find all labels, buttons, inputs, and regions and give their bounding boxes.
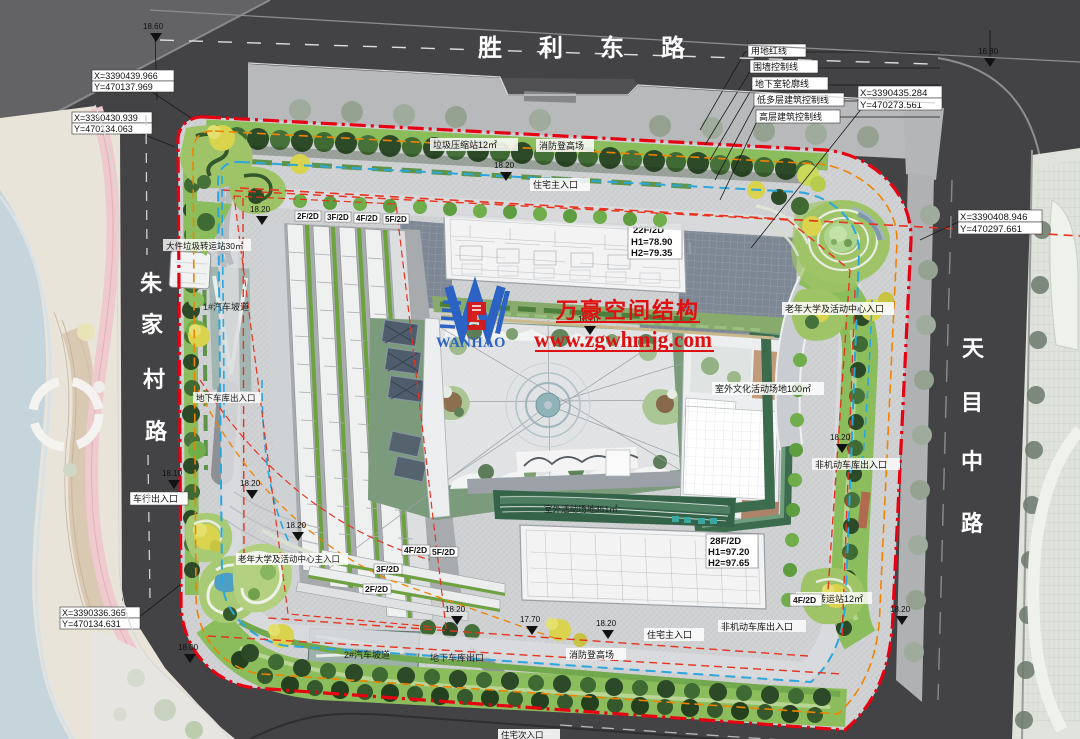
svg-text:非机动车库出入口: 非机动车库出入口 bbox=[721, 621, 793, 632]
svg-text:地下室轮廓线: 地下室轮廓线 bbox=[755, 78, 809, 89]
svg-text:Y=470297.661: Y=470297.661 bbox=[960, 224, 1022, 235]
svg-text:18.20: 18.20 bbox=[596, 619, 617, 628]
svg-text:天: 天 bbox=[962, 336, 985, 361]
svg-text:室外活动场地351㎡: 室外活动场地351㎡ bbox=[544, 504, 618, 514]
svg-text:住宅主入口: 住宅主入口 bbox=[533, 179, 578, 190]
svg-text:2F/2D: 2F/2D bbox=[365, 584, 388, 594]
svg-text:X=3390430.939: X=3390430.939 bbox=[74, 113, 138, 123]
svg-text:5F/2D: 5F/2D bbox=[385, 215, 407, 224]
svg-text:18.00: 18.00 bbox=[178, 643, 199, 652]
svg-text:高层建筑控制线: 高层建筑控制线 bbox=[759, 111, 822, 122]
svg-text:16.80: 16.80 bbox=[978, 47, 999, 56]
svg-text:2#汽车坡道: 2#汽车坡道 bbox=[344, 649, 390, 660]
svg-text:3F/2D: 3F/2D bbox=[376, 564, 399, 574]
svg-text:H2=79.35: H2=79.35 bbox=[631, 248, 673, 259]
svg-text:18.20: 18.20 bbox=[240, 479, 261, 488]
svg-text:万豪空间结构: 万豪空间结构 bbox=[555, 298, 700, 323]
svg-text:X=3390435.284: X=3390435.284 bbox=[860, 88, 927, 99]
svg-text:家: 家 bbox=[141, 312, 164, 337]
svg-text:H2=97.65: H2=97.65 bbox=[708, 558, 750, 569]
svg-text:18.20: 18.20 bbox=[445, 605, 466, 614]
svg-text:www.zgwhmjg.com: www.zgwhmjg.com bbox=[534, 327, 712, 352]
svg-text:18.20: 18.20 bbox=[250, 205, 271, 214]
svg-text:5F/2D: 5F/2D bbox=[432, 547, 455, 557]
svg-text:18.20: 18.20 bbox=[890, 605, 911, 614]
svg-text:X=3390408.946: X=3390408.946 bbox=[960, 212, 1027, 223]
svg-text:Y=470134.631: Y=470134.631 bbox=[62, 619, 121, 629]
svg-text:地下车库出口: 地下车库出口 bbox=[430, 652, 484, 663]
svg-text:WANHAO: WANHAO bbox=[436, 335, 506, 351]
svg-text:17.70: 17.70 bbox=[520, 615, 541, 624]
svg-text:胜利东路: 胜利东路 bbox=[478, 34, 722, 62]
svg-text:非机动车库出入口: 非机动车库出入口 bbox=[815, 459, 887, 470]
svg-text:中: 中 bbox=[961, 449, 983, 474]
svg-text:住宅次入口: 住宅次入口 bbox=[501, 730, 544, 739]
svg-text:4F/2D: 4F/2D bbox=[356, 214, 378, 223]
svg-text:H1=97.20: H1=97.20 bbox=[708, 547, 749, 558]
svg-text:路: 路 bbox=[961, 511, 984, 536]
svg-text:垃圾压缩站12㎡: 垃圾压缩站12㎡ bbox=[433, 139, 497, 150]
svg-text:18.20: 18.20 bbox=[830, 433, 851, 442]
svg-text:围墙控制线: 围墙控制线 bbox=[753, 61, 798, 72]
svg-text:4F/2D: 4F/2D bbox=[793, 595, 816, 605]
svg-text:3F/2D: 3F/2D bbox=[327, 213, 349, 222]
svg-text:老年大学及活动中心入口: 老年大学及活动中心入口 bbox=[785, 303, 884, 314]
svg-text:1#汽车坡道: 1#汽车坡道 bbox=[203, 301, 249, 312]
svg-text:4F/2D: 4F/2D bbox=[404, 545, 427, 555]
svg-text:室外文化活动场地100㎡: 室外文化活动场地100㎡ bbox=[715, 383, 811, 394]
svg-text:路: 路 bbox=[145, 419, 168, 444]
svg-text:18.60: 18.60 bbox=[143, 22, 164, 31]
svg-text:消防登高场: 消防登高场 bbox=[539, 140, 584, 151]
svg-text:18.10: 18.10 bbox=[162, 469, 183, 478]
svg-text:18.20: 18.20 bbox=[286, 521, 307, 530]
svg-text:Y=470137.969: Y=470137.969 bbox=[94, 82, 153, 92]
svg-text:老年大学及活动中心主入口: 老年大学及活动中心主入口 bbox=[238, 554, 340, 564]
svg-text:地下车库出入口: 地下车库出入口 bbox=[196, 393, 256, 403]
svg-text:X=3390336.365: X=3390336.365 bbox=[62, 608, 126, 618]
svg-text:大件垃圾转运站30㎡: 大件垃圾转运站30㎡ bbox=[166, 241, 244, 251]
svg-text:X=3390439.966: X=3390439.966 bbox=[94, 71, 158, 81]
svg-text:朱: 朱 bbox=[140, 271, 163, 296]
svg-text:H1=78.90: H1=78.90 bbox=[631, 237, 672, 248]
svg-text:住宅主入口: 住宅主入口 bbox=[647, 629, 692, 640]
svg-text:村: 村 bbox=[143, 367, 165, 392]
svg-text:消防登高场: 消防登高场 bbox=[569, 649, 614, 660]
svg-text:18.20: 18.20 bbox=[494, 161, 515, 170]
svg-text:2F/2D: 2F/2D bbox=[297, 212, 319, 221]
svg-text:28F/2D: 28F/2D bbox=[710, 536, 741, 547]
svg-text:车行出入口: 车行出入口 bbox=[133, 493, 178, 504]
svg-text:目: 目 bbox=[961, 390, 983, 415]
